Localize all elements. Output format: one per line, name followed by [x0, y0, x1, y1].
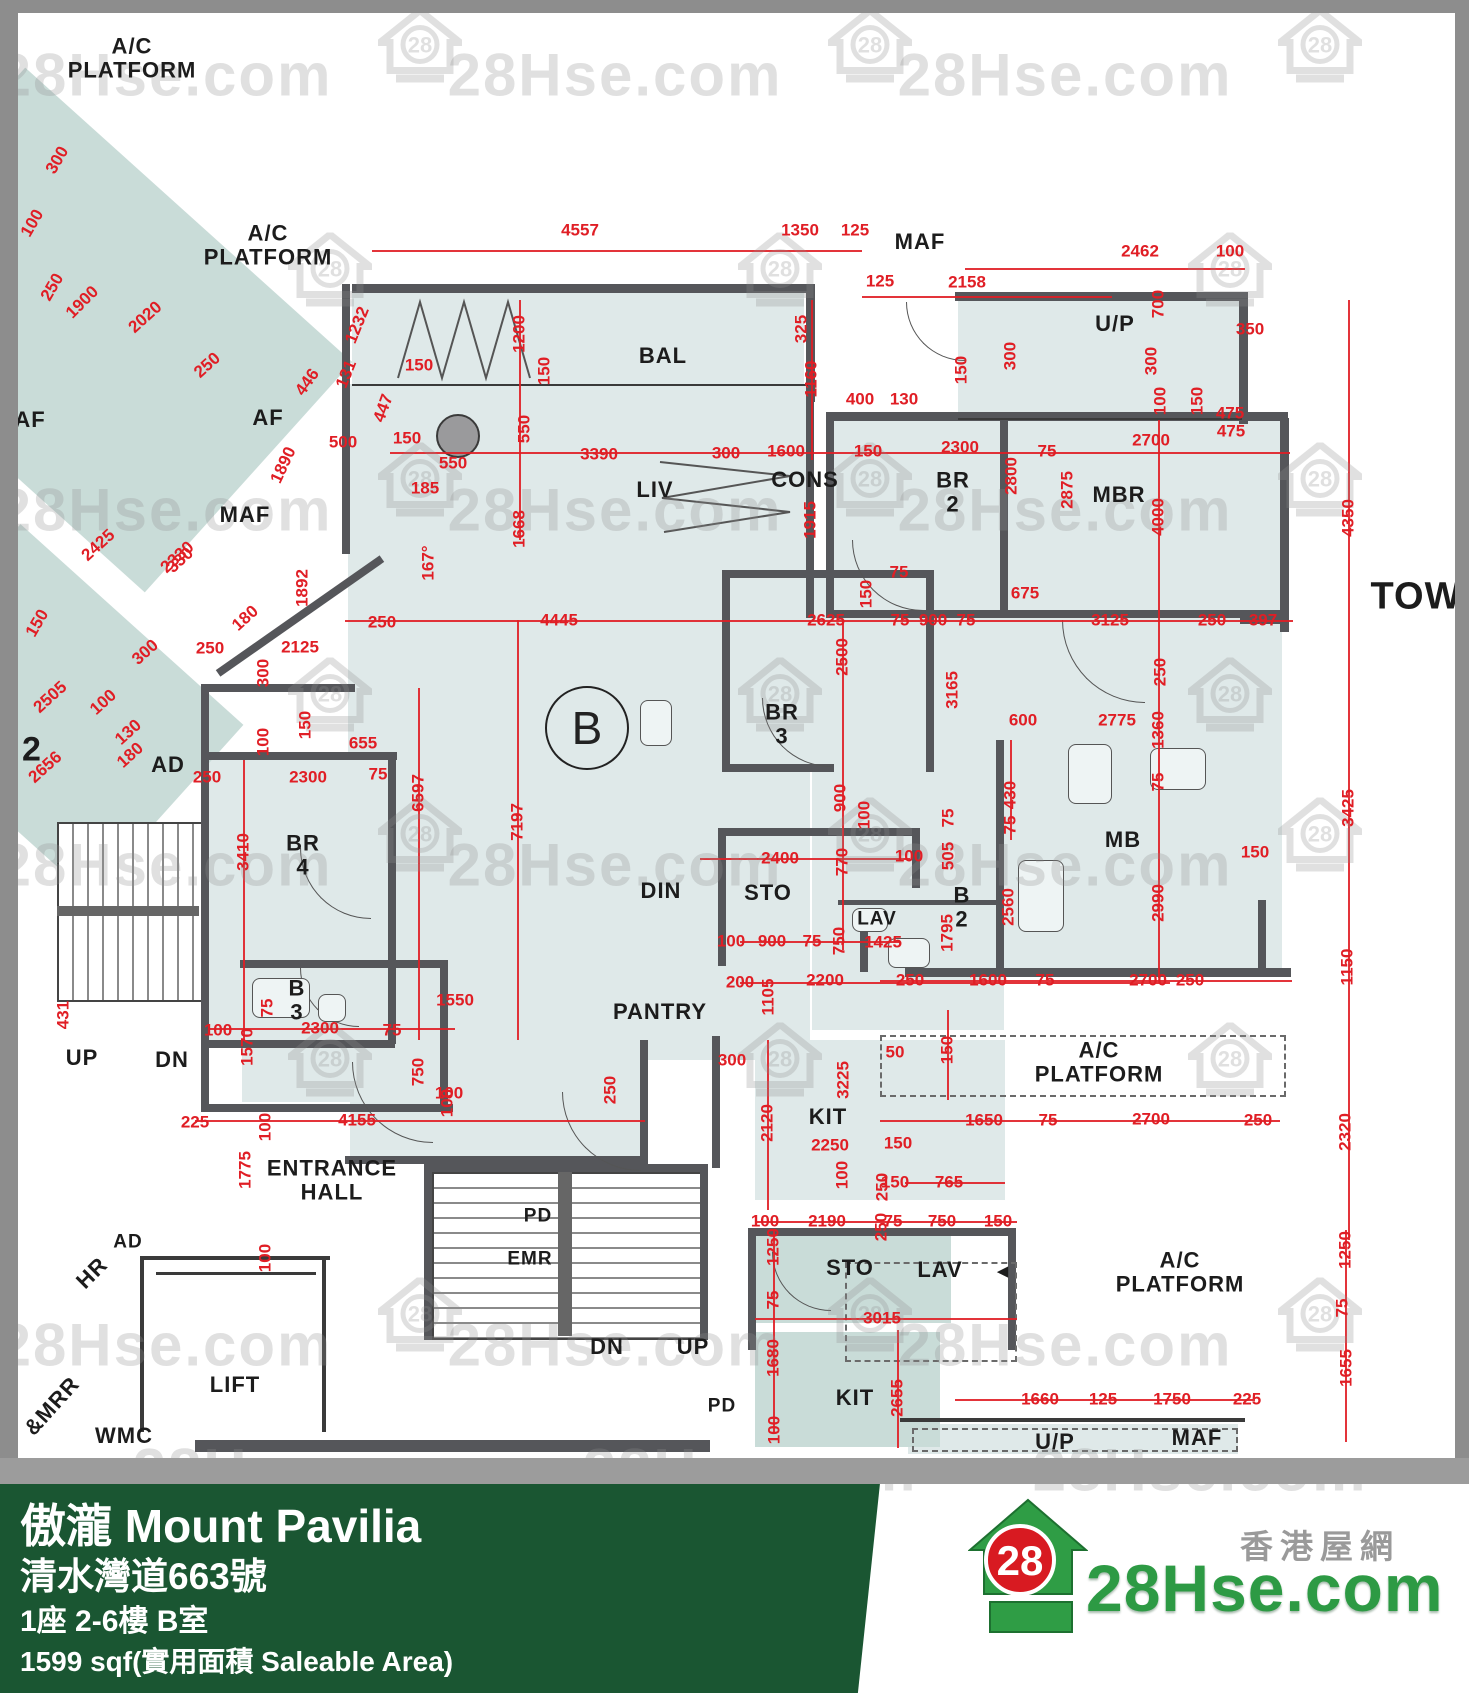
dimension-label: 125: [866, 273, 894, 290]
dimension-label: 100: [257, 1244, 274, 1272]
dimension-label: 225: [1233, 1391, 1261, 1408]
dimension-label: 765: [935, 1174, 963, 1191]
room-label: B 2: [954, 883, 971, 931]
dimension-label: 150: [858, 580, 875, 608]
dimension-label: 75: [1038, 443, 1057, 460]
dimension-label: 505: [940, 842, 957, 870]
dimension-label: 400: [846, 391, 874, 408]
dimension-label: 250: [1244, 1112, 1272, 1129]
dimension-label: 4155: [338, 1112, 376, 1129]
frame-top: [0, 0, 1469, 13]
dimension-label: 6597: [410, 774, 427, 812]
dimension-label: 1150: [1339, 949, 1356, 986]
dimension-label: 1750: [1153, 1391, 1191, 1408]
dimension-label: 750: [410, 1058, 427, 1086]
room-label: MB: [1105, 828, 1141, 852]
dimension-label: 75: [1334, 1299, 1351, 1318]
dimension-label: 125: [841, 222, 869, 239]
room-label: TOW: [1371, 576, 1462, 617]
watermark-text: 28Hse.com: [0, 831, 332, 900]
dimension-label: 150: [405, 357, 433, 374]
dimension-label: 250: [874, 1173, 891, 1201]
room-label: 2: [22, 732, 42, 769]
dimension-label: 3390: [580, 446, 618, 463]
room-label: B 3: [289, 976, 306, 1024]
dimension-line: [740, 982, 1170, 984]
dimension-label: 185: [411, 480, 439, 497]
room-label: BR 3: [765, 700, 799, 748]
room-label: MBR: [1092, 483, 1145, 507]
dimension-label: 2158: [948, 274, 986, 291]
dimension-label: 2775: [1098, 712, 1136, 729]
dimension-label: 750: [831, 927, 848, 955]
dimension-line: [880, 1120, 1280, 1122]
watermark-text: 28Hse.com: [898, 1311, 1233, 1380]
dimension-label: 250: [196, 640, 224, 657]
dimension-label: 75: [1150, 773, 1167, 792]
dimension-label: 100: [1152, 387, 1169, 415]
room-label: MAF: [220, 503, 271, 527]
dimension-label: 75: [891, 612, 910, 629]
dimension-label: 75: [884, 1213, 903, 1230]
dimension-label: 550: [439, 455, 467, 472]
svg-text:28: 28: [858, 33, 882, 58]
dimension-label: 100: [1216, 243, 1244, 260]
watermark-house-icon: 28: [738, 1023, 822, 1102]
dimension-label: 900: [758, 933, 786, 950]
room-label: UP: [677, 1335, 710, 1359]
dimension-label: 2400: [761, 850, 799, 867]
dimension-label: 2250: [811, 1137, 849, 1154]
dimension-label: 1668: [511, 510, 528, 548]
dimension-label: 675: [1011, 585, 1039, 602]
dimension-label: 4000: [1150, 498, 1167, 536]
room-label: A/C PLATFORM: [204, 221, 333, 269]
dimension-label: 2300: [941, 439, 979, 456]
svg-text:28: 28: [1218, 1047, 1242, 1072]
room-label: MAF: [1172, 1426, 1223, 1450]
dimension-label: 100: [895, 848, 923, 865]
dimension-label: 475: [1217, 423, 1245, 440]
dimension-label: 300: [1143, 347, 1160, 375]
dimension-label: 2800: [1003, 457, 1020, 495]
estate-area: 1599 sqf(實用面積 Saleable Area): [20, 1640, 453, 1680]
room-label: BR 4: [286, 831, 320, 879]
dimension-label: 150: [854, 443, 882, 460]
room-label: PD: [524, 1207, 552, 1228]
room-label: KIT: [836, 1386, 874, 1410]
room-label: A/C PLATFORM: [68, 34, 197, 82]
room-label: LAV: [917, 1258, 962, 1282]
svg-text:28: 28: [408, 33, 432, 58]
dimension-label: 250: [1198, 612, 1226, 629]
dimension-label: 2320: [1337, 1113, 1354, 1151]
dimension-label: 1105: [760, 979, 777, 1016]
dimension-label: 1650: [965, 1112, 1003, 1129]
watermark-house-icon: 28: [378, 1278, 462, 1357]
frame-left: [0, 0, 18, 1469]
dimension-label: 100: [717, 933, 745, 950]
dimension-label: 2462: [1121, 243, 1159, 260]
room-label: EMR: [507, 1250, 552, 1271]
dimension-label: 150: [1241, 844, 1269, 861]
dimension-label: 75: [1039, 1112, 1058, 1129]
svg-text:28: 28: [1308, 33, 1332, 58]
dimension-label: 4557: [561, 222, 599, 239]
dimension-label: 1250: [765, 1228, 782, 1266]
room-label: AF: [14, 408, 45, 432]
watermark-text: 28Hse.com: [448, 476, 783, 545]
dimension-label: 1680: [765, 1339, 782, 1377]
dimension-label: 1160: [803, 361, 820, 398]
dimension-label: 1775: [237, 1151, 254, 1189]
dimension-label: 250: [602, 1076, 619, 1104]
dimension-label: 3165: [944, 671, 961, 709]
dimension-label: 1892: [294, 569, 311, 607]
dimension-label: 75: [940, 809, 957, 828]
estate-address: 清水灣道663號: [20, 1546, 267, 1600]
dimension-label: 100: [751, 1213, 779, 1230]
dimension-label: 900: [919, 612, 947, 629]
dimension-label: 150: [939, 1036, 956, 1064]
room-label: UP: [66, 1046, 99, 1070]
watermark-house-icon: 28: [378, 9, 462, 88]
svg-text:28: 28: [318, 682, 342, 707]
frame-right: [1455, 0, 1469, 1469]
dimension-label: 4445: [540, 612, 578, 629]
dimension-label: 150: [297, 711, 314, 739]
svg-text:28: 28: [1308, 1302, 1332, 1327]
dimension-label: 2190: [808, 1213, 846, 1230]
dimension-label: 75: [957, 612, 976, 629]
dimension-label: 50: [886, 1044, 905, 1061]
dimension-label: 2560: [1000, 888, 1017, 926]
room-label: BR 2: [936, 468, 970, 516]
dimension-label: 75: [765, 1291, 782, 1310]
dimension-label: 100: [255, 728, 272, 756]
room-label: PD: [708, 1397, 736, 1418]
room-label: A/C PLATFORM: [1035, 1038, 1164, 1086]
dimension-label: 2700: [1129, 972, 1167, 989]
dimension-label: 75: [383, 1022, 402, 1039]
dimension-label: 3410: [235, 833, 252, 871]
svg-text:28: 28: [768, 257, 792, 282]
dimension-label: 75: [259, 999, 276, 1018]
dimension-label: 1250: [1337, 1231, 1354, 1269]
room-label: ◄: [993, 1263, 1013, 1284]
dimension-label: 475: [1216, 405, 1244, 422]
watermark-text: 28Hse.com: [898, 41, 1233, 110]
footer-divider: [0, 1458, 1469, 1484]
dimension-label: 1425: [864, 934, 902, 951]
svg-text:28: 28: [858, 467, 882, 492]
28hse-logo[interactable]: 28 香港屋網 28Hse.com: [968, 1498, 1448, 1683]
dimension-label: 1600: [969, 972, 1007, 989]
dimension-label: 3125: [1091, 612, 1129, 629]
dimension-label: 150: [536, 357, 553, 385]
watermark-house-icon: 28: [738, 233, 822, 312]
dimension-label: 2990: [1150, 884, 1167, 922]
dimension-label: 750: [928, 1213, 956, 1230]
dimension-line: [862, 296, 1112, 298]
dimension-label: 130: [890, 391, 918, 408]
dimension-line: [243, 760, 245, 1040]
room-label: DN: [155, 1048, 189, 1072]
room-label: LIFT: [210, 1373, 260, 1397]
dimension-label: 4350: [1340, 499, 1357, 537]
room-label: PANTRY: [613, 1000, 707, 1024]
dimension-label: 2125: [281, 639, 319, 656]
dimension-label: 125: [1089, 1391, 1117, 1408]
floorplan-page: 28Hse.com28Hse.com28Hse.com28Hse.com28Hs…: [0, 0, 1469, 1693]
room-label: MAF: [895, 230, 946, 254]
dimension-label: 250: [193, 769, 221, 786]
dimension-label: 75: [803, 933, 822, 950]
dimension-label: 225: [181, 1114, 209, 1131]
dimension-label: 1600: [767, 443, 805, 460]
dimension-label: 2700: [1132, 432, 1170, 449]
dimension-label: 150: [1189, 387, 1206, 415]
dimension-label: 250: [1152, 658, 1169, 686]
estate-unit: 1座 2-6樓 B室: [20, 1596, 208, 1640]
dimension-label: 1360: [1150, 711, 1167, 749]
watermark-house-icon: 28: [1188, 658, 1272, 737]
watermark-house-icon: 28: [828, 9, 912, 88]
dimension-label: 100: [766, 1416, 783, 1444]
dimension-label: 700: [1150, 290, 1167, 318]
room-label: KIT: [809, 1105, 847, 1129]
svg-text:28: 28: [1308, 467, 1332, 492]
dimension-label: 2300: [289, 769, 327, 786]
dimension-label: 1655: [1338, 1349, 1355, 1387]
dimension-label: 75: [890, 564, 909, 581]
dimension-label: 3015: [863, 1310, 901, 1327]
room-label: AD: [113, 1233, 142, 1254]
dimension-label: 2875: [1059, 471, 1076, 509]
dimension-label: 655: [349, 735, 377, 752]
dimension-label: 1915: [802, 501, 819, 539]
dimension-label: 1200: [511, 315, 528, 353]
watermark-text: 28Hse.com: [448, 831, 783, 900]
dimension-label: 900: [832, 784, 849, 812]
room-label: AF: [252, 406, 283, 430]
watermark-text: 28Hse.com: [0, 1311, 332, 1380]
room-label: AD: [151, 753, 185, 777]
svg-text:28: 28: [768, 1047, 792, 1072]
watermark-house-icon: 28: [1188, 1023, 1272, 1102]
room-label: LAV: [857, 910, 897, 931]
dimension-label: 2625: [807, 612, 845, 629]
dimension-label: 500: [329, 434, 357, 451]
dimension-label: 1660: [1021, 1391, 1059, 1408]
dimension-label: 200: [726, 974, 754, 991]
dimension-label: 1570: [239, 1028, 256, 1066]
dimension-label: 75: [1036, 972, 1055, 989]
room-label: CONS: [771, 468, 839, 492]
unit-badge: B: [545, 686, 629, 770]
dimension-label: 2500: [834, 638, 851, 676]
dimension-label: 431: [55, 1001, 72, 1029]
dimension-label: 1350: [781, 222, 819, 239]
dimension-label: 75: [369, 766, 388, 783]
dimension-label: 100: [435, 1085, 463, 1102]
svg-text:28: 28: [1308, 822, 1332, 847]
dimension-label: 250: [896, 972, 924, 989]
dimension-label: 2655: [889, 1379, 906, 1417]
room-label: U/P: [1035, 1430, 1075, 1454]
dimension-label: 100: [204, 1022, 232, 1039]
room-label: ENTRANCE HALL: [267, 1156, 397, 1204]
house-logo-icon: 28: [968, 1498, 1088, 1638]
dimension-label: 7197: [509, 803, 526, 841]
dimension-label: 600: [1009, 712, 1037, 729]
dimension-label: 397: [1249, 612, 1277, 629]
dimension-label: 300: [1002, 342, 1019, 370]
dimension-label: 300: [712, 445, 740, 462]
room-label: LIV: [636, 478, 673, 502]
dimension-label: 150: [393, 430, 421, 447]
watermark-house-icon: 28: [1278, 9, 1362, 88]
dimension-label: 250: [1176, 972, 1204, 989]
dimension-label: 350: [1236, 321, 1264, 338]
dimension-label: 150: [984, 1213, 1012, 1230]
room-label: DN: [590, 1335, 624, 1359]
dimension-label: 300: [255, 659, 272, 687]
dimension-label: 250: [368, 614, 396, 631]
dimension-label: 3425: [1340, 789, 1357, 827]
dimension-label: 100: [856, 801, 873, 829]
dimension-label: 150: [953, 356, 970, 384]
svg-text:28: 28: [1218, 682, 1242, 707]
dimension-label: 770: [834, 848, 851, 876]
dimension-label: 430: [1002, 781, 1019, 809]
dimension-label: 550: [516, 415, 533, 443]
dimension-label: 325: [793, 315, 810, 343]
dimension-label: 100: [834, 1161, 851, 1189]
room-label: A/C PLATFORM: [1116, 1248, 1245, 1296]
svg-text:28: 28: [318, 1047, 342, 1072]
dimension-label: 2700: [1132, 1111, 1170, 1128]
room-label: STO: [744, 881, 792, 905]
watermark-text: 28Hse.com: [448, 41, 783, 110]
dimension-label: 2300: [301, 1020, 339, 1037]
room-label: STO: [826, 1256, 874, 1280]
svg-text:28: 28: [997, 1537, 1044, 1584]
dimension-label: 100: [257, 1113, 274, 1141]
dimension-label: 2120: [759, 1104, 776, 1142]
dimension-label: 1550: [436, 992, 474, 1009]
room-label: WMC: [95, 1424, 153, 1448]
room-label: U/P: [1095, 312, 1135, 336]
dimension-label: 2200: [806, 972, 844, 989]
svg-text:28: 28: [408, 822, 432, 847]
dimension-label: 167°: [420, 545, 437, 580]
dimension-label: 75: [1002, 816, 1019, 835]
logo-brand: 28Hse.com: [1086, 1550, 1444, 1626]
dimension-label: 300: [718, 1052, 746, 1069]
dimension-label: 150: [884, 1135, 912, 1152]
room-label: DIN: [641, 879, 682, 903]
room-label: BAL: [639, 344, 687, 368]
dimension-label: 3225: [835, 1061, 852, 1099]
svg-text:28: 28: [408, 1302, 432, 1327]
